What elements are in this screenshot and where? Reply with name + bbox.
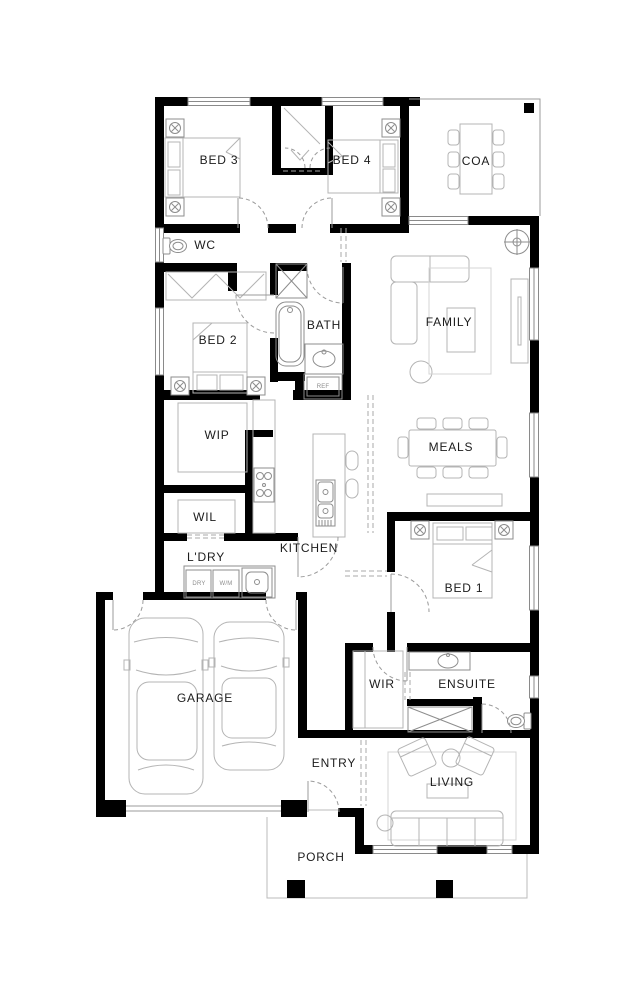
room-label-ensuite: ENSUITE — [438, 677, 496, 691]
washer-label: W/M — [220, 581, 233, 587]
window-bed1 — [530, 546, 539, 610]
ensuite-shower — [408, 707, 472, 732]
room-label-porch: PORCH — [297, 850, 344, 864]
window-wc — [156, 228, 164, 262]
wc-toilet — [163, 238, 187, 254]
window-alfresco — [409, 217, 468, 225]
room-label-wc: WC — [194, 238, 216, 252]
garage-door — [126, 806, 281, 811]
shared-robe-shelving — [284, 108, 320, 160]
cooktop — [254, 468, 274, 502]
porch-piers — [287, 880, 453, 898]
bath-vanity — [305, 344, 343, 374]
room-label-meals: MEALS — [429, 440, 474, 454]
room-label-bath: BATH — [307, 318, 341, 332]
living-armchair-1 — [397, 737, 437, 777]
room-label-ldry: L'DRY — [187, 550, 225, 564]
room-label-bed3: BED 3 — [200, 153, 239, 167]
hot-water-unit — [504, 229, 530, 255]
window-bed3 — [188, 98, 250, 106]
room-label-family: FAMILY — [426, 315, 473, 329]
window-family — [530, 268, 539, 340]
window-ensuite — [530, 676, 539, 698]
walls — [96, 97, 539, 854]
room-label-coa: COA — [462, 154, 490, 168]
room-label-wir: WIR — [369, 677, 395, 691]
window-bed2 — [156, 308, 164, 375]
living-armchair-2 — [455, 736, 495, 776]
bathtub — [276, 302, 304, 366]
room-label-bed2: BED 2 — [199, 333, 238, 347]
ensuite-vanity — [409, 652, 470, 670]
window-living-2 — [487, 846, 512, 854]
kitchen-bench — [253, 400, 275, 533]
living-sofa — [391, 811, 503, 846]
room-label-garage: GARAGE — [177, 691, 233, 705]
bed3-bed — [165, 138, 240, 197]
floor-plan: BED 3 BED 4 COA WC BATH FAMILY BED 2 WIP… — [0, 0, 640, 999]
windows — [156, 98, 539, 854]
living-rug — [388, 752, 516, 840]
garage-car-1 — [124, 618, 208, 794]
room-label-kitchen: KITCHEN — [280, 541, 338, 555]
dryer-label: DRY — [192, 581, 205, 587]
kitchen-sink — [316, 480, 335, 526]
fridge-label: REF — [317, 384, 330, 390]
room-label-bed1: BED 1 — [445, 581, 484, 595]
room-label-living: LIVING — [430, 775, 474, 789]
meals-sideboard — [427, 494, 502, 506]
ensuite-toilet — [508, 713, 532, 729]
room-label-wip: WIP — [204, 428, 229, 442]
window-meals — [530, 413, 539, 477]
window-bed4 — [322, 98, 383, 106]
room-label-wil: WIL — [193, 510, 217, 524]
room-label-bed4: BED 4 — [333, 153, 372, 167]
window-living-1 — [373, 846, 437, 854]
tv-unit — [511, 279, 528, 363]
bed2-robe — [166, 272, 266, 300]
room-label-entry: ENTRY — [312, 756, 356, 770]
